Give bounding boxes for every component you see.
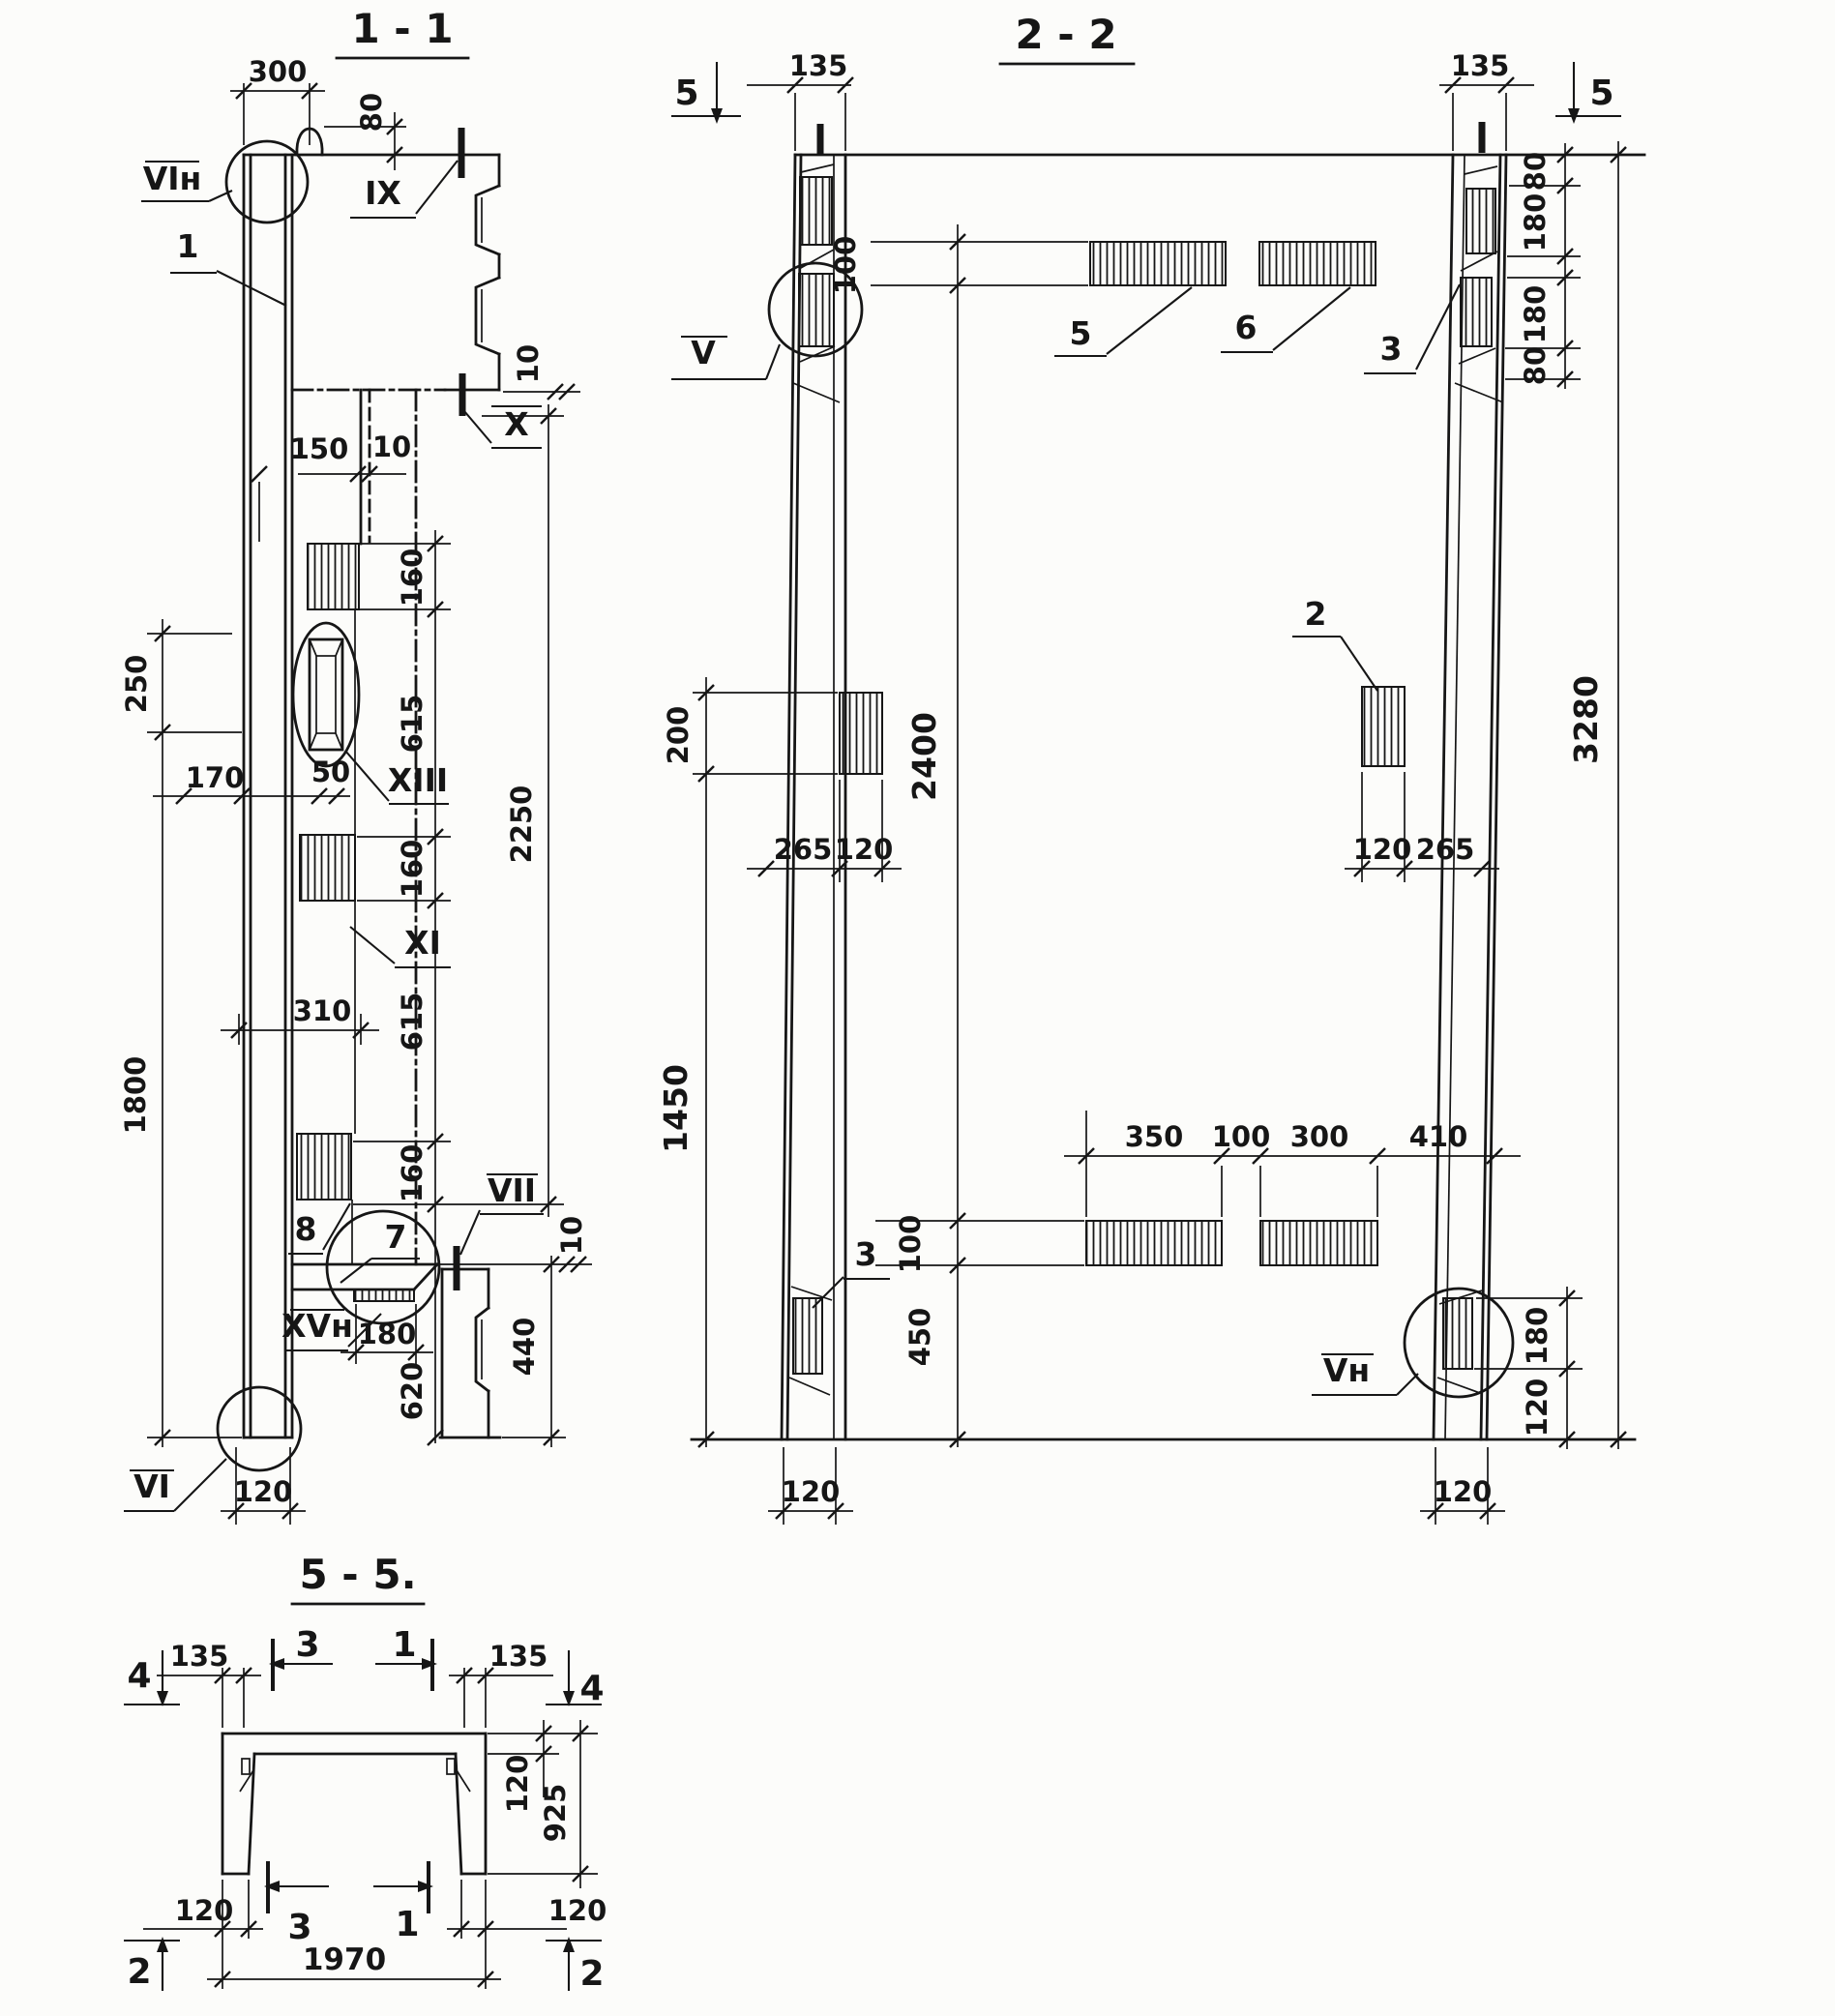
dim-410: 410 bbox=[1409, 1120, 1468, 1153]
cut-mark-1-bottom: 1 bbox=[395, 1905, 419, 1944]
dim-615: 615 bbox=[396, 993, 429, 1052]
section-2-2: 2 - 2 bbox=[657, 11, 1644, 1525]
dim-3280: 3280 bbox=[1567, 675, 1605, 764]
dim-10: 10 bbox=[512, 344, 545, 383]
drawing-sheet: 1 - 1 bbox=[0, 0, 1835, 2016]
s11-title-text: 1 - 1 bbox=[351, 5, 453, 52]
dim-120: 120 bbox=[835, 833, 894, 866]
label-ix: IX bbox=[365, 174, 401, 212]
dim-120: 120 bbox=[1434, 1475, 1493, 1508]
rib-plate bbox=[1461, 278, 1492, 346]
s55-title: 5 - 5. bbox=[292, 1551, 424, 1604]
label-x: X bbox=[504, 405, 528, 443]
rib-plate bbox=[1443, 1298, 1472, 1369]
s55-title-text: 5 - 5. bbox=[299, 1551, 416, 1598]
dim-120: 120 bbox=[501, 1755, 534, 1814]
dim-450: 450 bbox=[903, 1308, 936, 1367]
corner-insert bbox=[242, 1759, 250, 1774]
label-vin: VIн bbox=[143, 160, 202, 197]
label-8: 8 bbox=[295, 1210, 317, 1248]
s55-outline bbox=[222, 1734, 486, 1874]
label-v: V bbox=[691, 334, 716, 371]
dim-160: 160 bbox=[396, 548, 429, 608]
dim-440: 440 bbox=[508, 1318, 541, 1377]
embed-plate bbox=[1086, 1221, 1222, 1265]
dim-150: 150 bbox=[290, 432, 349, 465]
cut-mark-1-top: 1 bbox=[392, 1625, 416, 1665]
label-2: 2 bbox=[1305, 595, 1327, 633]
label-6: 6 bbox=[1235, 309, 1258, 346]
label-xvn: XVн bbox=[281, 1307, 353, 1345]
dim-180: 180 bbox=[358, 1318, 417, 1350]
dim-135: 135 bbox=[170, 1640, 229, 1673]
keyway-top-1 bbox=[476, 186, 499, 254]
dim-300: 300 bbox=[249, 55, 308, 88]
dim-120: 120 bbox=[234, 1475, 293, 1508]
embed-plate-2 bbox=[1362, 687, 1405, 766]
dim-80: 80 bbox=[1519, 346, 1552, 385]
label-xi: XI bbox=[404, 924, 441, 962]
keyway-top-2 bbox=[476, 278, 499, 354]
detail-circle-vi bbox=[218, 1387, 301, 1470]
dim-2250: 2250 bbox=[505, 786, 538, 864]
label-1: 1 bbox=[177, 227, 199, 265]
dim-120: 120 bbox=[548, 1894, 607, 1927]
section-1-1: 1 - 1 bbox=[119, 5, 592, 1525]
dim-160: 160 bbox=[396, 1144, 429, 1203]
label-vii: VII bbox=[488, 1171, 536, 1209]
dim-135: 135 bbox=[489, 1640, 548, 1673]
dim-10: 10 bbox=[555, 1216, 588, 1255]
label-vi: VI bbox=[133, 1468, 170, 1505]
cut-mark-4-left: 4 bbox=[127, 1656, 151, 1696]
embed-plate bbox=[308, 544, 359, 609]
label-5: 5 bbox=[1070, 314, 1092, 352]
embed-plate bbox=[840, 693, 882, 774]
dim-265: 265 bbox=[774, 833, 833, 866]
dim-10: 10 bbox=[372, 430, 411, 463]
cut-mark-3-top: 3 bbox=[295, 1625, 319, 1665]
dim-120: 120 bbox=[1521, 1379, 1554, 1438]
embed-plate-6 bbox=[1259, 242, 1376, 285]
label-3-right: 3 bbox=[1380, 330, 1403, 368]
label-7: 7 bbox=[385, 1218, 407, 1256]
s55-dimensions: 135 135 120 925 120 120 bbox=[143, 1640, 607, 1989]
label-vn: Vн bbox=[1323, 1351, 1370, 1389]
embed-plate bbox=[300, 835, 355, 901]
dim-100: 100 bbox=[829, 236, 862, 295]
label-3-left: 3 bbox=[855, 1235, 877, 1273]
dim-135: 135 bbox=[1451, 49, 1510, 82]
detail-oval-xiii bbox=[293, 623, 359, 766]
embed-plate bbox=[297, 1134, 351, 1200]
corner-insert bbox=[447, 1759, 455, 1774]
s22-title-text: 2 - 2 bbox=[1015, 11, 1116, 58]
rib-plate bbox=[793, 1298, 822, 1374]
dim-265: 265 bbox=[1416, 833, 1475, 866]
dim-1450: 1450 bbox=[657, 1064, 695, 1153]
dim-1800: 1800 bbox=[119, 1056, 152, 1135]
dim-250: 250 bbox=[120, 655, 153, 714]
cut-mark-5-left: 5 bbox=[674, 74, 698, 113]
rib-plate bbox=[800, 177, 832, 245]
corbel-serration bbox=[354, 1290, 414, 1301]
cut-mark-5-right: 5 bbox=[1589, 74, 1613, 113]
dim-180: 180 bbox=[1521, 1307, 1554, 1366]
cut-mark-3-bottom: 3 bbox=[287, 1908, 311, 1947]
dim-170: 170 bbox=[186, 761, 245, 794]
dim-120: 120 bbox=[782, 1475, 841, 1508]
section-5-5: 5 - 5. 135 135 bbox=[124, 1551, 607, 1994]
dim-50: 50 bbox=[311, 756, 350, 788]
cut-mark-2-right: 2 bbox=[579, 1954, 604, 1994]
dim-160: 160 bbox=[396, 840, 429, 899]
dim-180: 180 bbox=[1519, 193, 1552, 252]
s11-plates bbox=[293, 544, 359, 1200]
dim-120: 120 bbox=[1353, 833, 1412, 866]
dim-1970: 1970 bbox=[303, 1942, 386, 1977]
cut-mark-4-right: 4 bbox=[579, 1669, 604, 1708]
dim-615: 615 bbox=[396, 695, 429, 754]
embed-plate bbox=[1260, 1221, 1377, 1265]
dim-310: 310 bbox=[293, 994, 352, 1027]
engineering-drawing: 1 - 1 bbox=[0, 0, 1835, 2016]
dim-200: 200 bbox=[662, 706, 695, 765]
dim-2400: 2400 bbox=[905, 712, 943, 801]
dim-100: 100 bbox=[894, 1215, 927, 1274]
dim-300: 300 bbox=[1290, 1120, 1349, 1153]
dim-100: 100 bbox=[1212, 1120, 1271, 1153]
dim-80: 80 bbox=[355, 93, 388, 132]
dim-135: 135 bbox=[789, 49, 848, 82]
dim-120: 120 bbox=[175, 1894, 234, 1927]
rib-plate bbox=[1466, 189, 1495, 253]
cut-mark-2-left: 2 bbox=[127, 1952, 151, 1992]
dim-180: 180 bbox=[1519, 285, 1552, 344]
s22-title: 2 - 2 bbox=[1000, 11, 1134, 64]
dim-80: 80 bbox=[1519, 152, 1552, 191]
dim-925: 925 bbox=[539, 1784, 572, 1843]
label-xiii: XIII bbox=[388, 761, 448, 799]
s11-title: 1 - 1 bbox=[337, 5, 468, 58]
dim-350: 350 bbox=[1125, 1120, 1184, 1153]
embed-plate-5 bbox=[1090, 242, 1226, 285]
dim-620: 620 bbox=[396, 1362, 429, 1421]
